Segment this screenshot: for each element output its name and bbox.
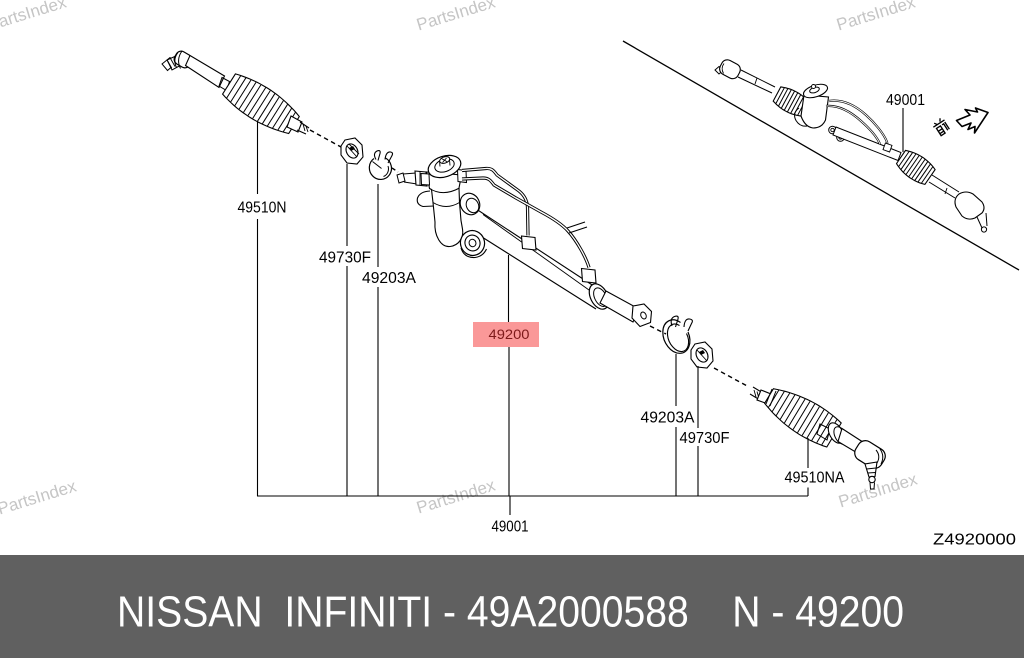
svg-text:49203A: 49203A <box>641 409 695 426</box>
svg-text:49001: 49001 <box>886 92 925 109</box>
svg-text:49730F: 49730F <box>319 249 371 266</box>
svg-text:PartsIndex: PartsIndex <box>0 0 69 34</box>
svg-text:49510N: 49510N <box>238 199 287 216</box>
svg-text:49200: 49200 <box>489 326 530 342</box>
svg-text:49510NA: 49510NA <box>785 469 845 486</box>
svg-text:PartsIndex: PartsIndex <box>834 0 918 34</box>
svg-text:PartsIndex: PartsIndex <box>0 476 79 518</box>
svg-text:PartsIndex: PartsIndex <box>414 0 498 34</box>
svg-text:Z4920000: Z4920000 <box>933 531 1016 548</box>
svg-text:49730F: 49730F <box>680 430 730 447</box>
svg-text:49203A: 49203A <box>362 270 416 287</box>
svg-text:PartsIndex: PartsIndex <box>836 469 920 511</box>
svg-text:NISSAN INFINITI - 49A2000588: NISSAN INFINITI - 49A2000588 N - 49200 <box>117 588 904 637</box>
svg-text:49001: 49001 <box>492 518 529 535</box>
